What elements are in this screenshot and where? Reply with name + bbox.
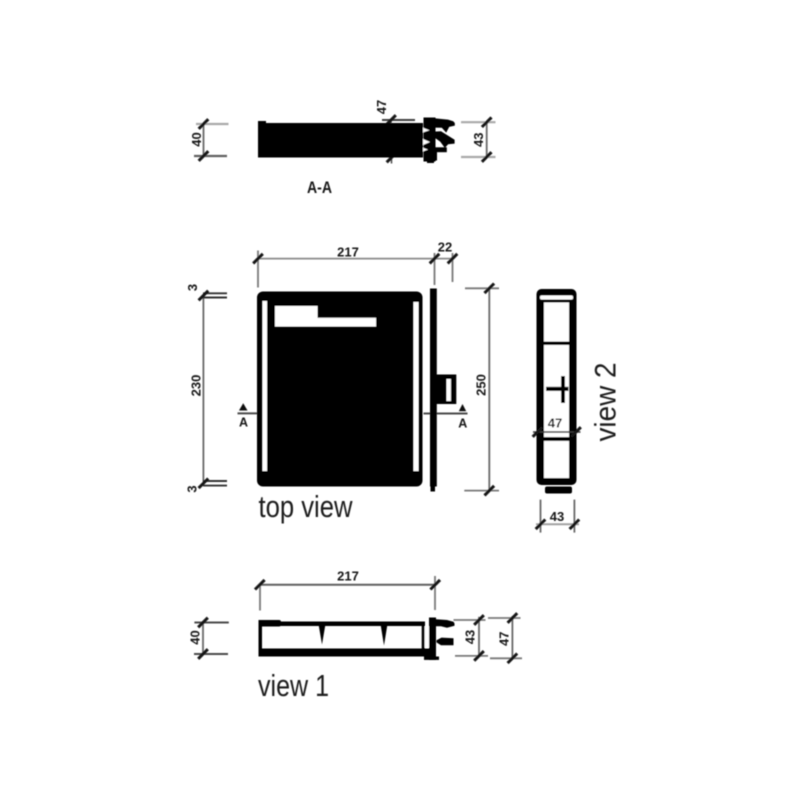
svg-text:top view: top view xyxy=(259,489,353,524)
svg-text:view 1: view 1 xyxy=(258,668,329,703)
svg-text:view 2: view 2 xyxy=(590,363,623,442)
svg-text:A: A xyxy=(458,417,467,431)
svg-text:A-A: A-A xyxy=(307,179,332,197)
svg-text:40: 40 xyxy=(188,630,203,644)
svg-text:217: 217 xyxy=(337,569,359,584)
svg-text:250: 250 xyxy=(474,374,489,396)
svg-text:217: 217 xyxy=(337,245,359,260)
svg-text:47: 47 xyxy=(497,632,512,646)
svg-text:3: 3 xyxy=(185,284,200,291)
svg-text:43: 43 xyxy=(463,630,478,644)
svg-text:43: 43 xyxy=(471,133,486,147)
svg-text:47: 47 xyxy=(374,100,389,114)
svg-text:43: 43 xyxy=(550,509,564,524)
svg-text:22: 22 xyxy=(438,240,452,255)
svg-text:230: 230 xyxy=(189,375,204,397)
svg-text:A: A xyxy=(239,416,248,430)
svg-text:3: 3 xyxy=(185,485,200,492)
svg-text:47: 47 xyxy=(548,416,562,431)
svg-text:40: 40 xyxy=(189,132,204,146)
